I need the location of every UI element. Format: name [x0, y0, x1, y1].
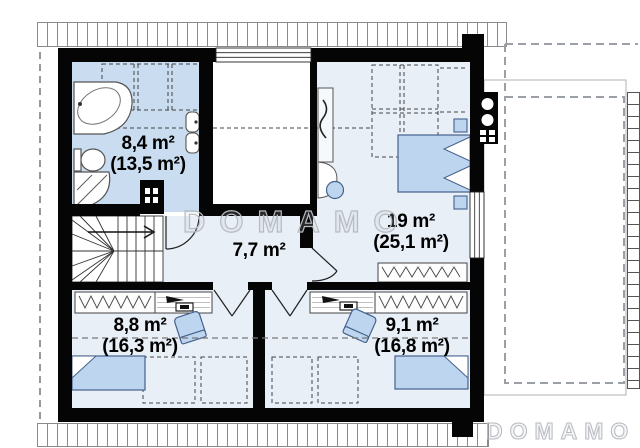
wardrobe-icon	[375, 292, 467, 313]
window-icon	[216, 48, 311, 62]
area-value: 9,1 m²	[342, 316, 482, 337]
bathroom-area-label: 8,4 m² (13,5 m²)	[78, 134, 218, 175]
room-bottom-left-area-label: 8,8 m² (16,3 m²)	[70, 316, 210, 357]
area-value: 7,7 m²	[201, 241, 317, 262]
single-bed-icon	[395, 356, 468, 389]
watermark-bottom-right: DOMAMO	[486, 418, 635, 445]
wardrobe-icon	[378, 263, 467, 282]
chimney-icon	[477, 92, 498, 144]
total-area-value: (16,3 m²)	[70, 337, 210, 358]
hall-area-label: 7,7 m²	[201, 241, 317, 262]
double-bed-icon	[398, 135, 470, 192]
single-bed-icon	[72, 356, 145, 390]
wardrobe-icon	[75, 292, 155, 313]
total-area-value: (16,8 m²)	[342, 337, 482, 358]
office-chair-icon	[327, 182, 344, 199]
chimney-icon	[140, 180, 164, 214]
area-value: 8,8 m²	[70, 316, 210, 337]
room-bottom-right-area-label: 9,1 m² (16,8 m²)	[342, 316, 482, 357]
floor-plan: 8,4 m² (13,5 m²) 7,7 m² 19 m² (25,1 m²) …	[0, 0, 640, 448]
desk-icon	[155, 292, 212, 313]
staircase	[72, 216, 163, 282]
area-value: 8,4 m²	[78, 134, 218, 155]
void-room-floor	[213, 62, 310, 204]
balcony-roof	[484, 44, 638, 395]
total-area-value: (13,5 m²)	[78, 155, 218, 176]
desk-icon	[310, 292, 375, 313]
watermark-center: DOMAMO	[183, 204, 412, 240]
